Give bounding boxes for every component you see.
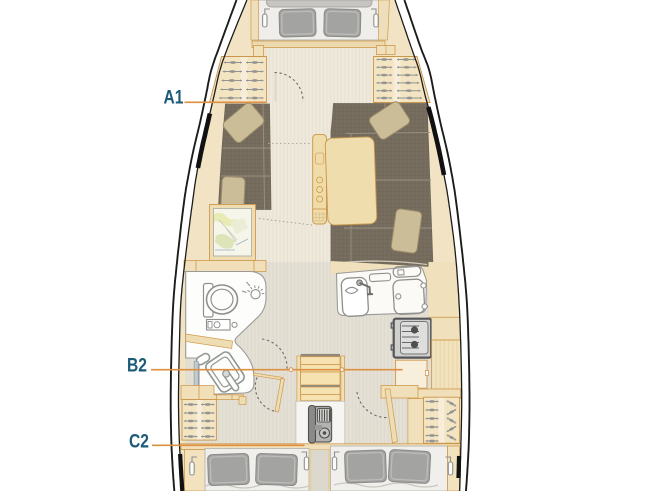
svg-text:A1: A1: [164, 86, 184, 108]
svg-text:B2: B2: [127, 354, 147, 376]
svg-text:C2: C2: [129, 430, 149, 452]
